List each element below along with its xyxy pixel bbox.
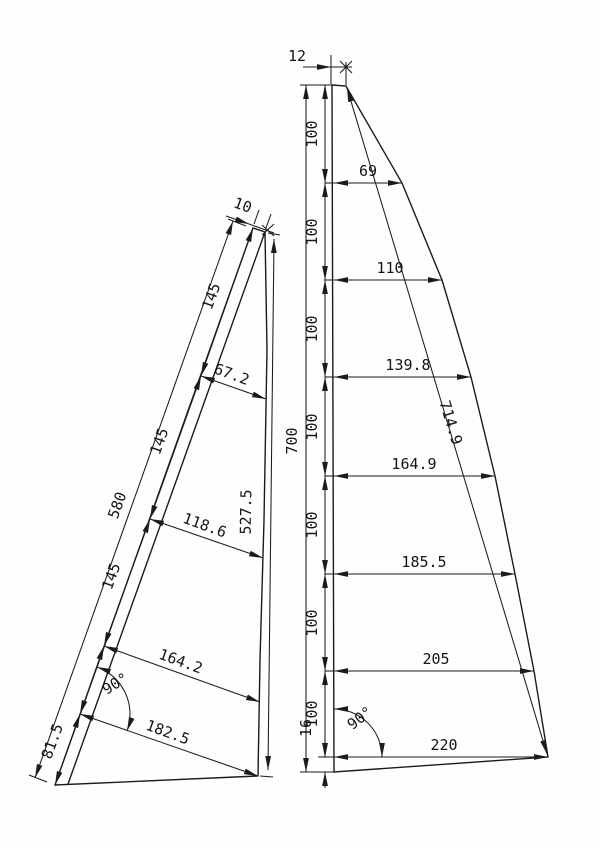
- dim-main-luff-segment-3: 100: [303, 315, 321, 342]
- dim-jib-luff-segment-2: 145: [146, 425, 172, 457]
- dim-main-head-width: 12: [288, 47, 306, 65]
- dim-main-clew-angle: 90°: [344, 703, 376, 734]
- dim-jib-girth-2: 118.6: [180, 509, 229, 541]
- dim-main-girth-5: 185.5: [401, 553, 446, 571]
- dim-jib-leech: 527.5: [237, 489, 256, 534]
- dim-main-luff-segment-4: 100: [303, 413, 321, 440]
- dim-jib-luff-total: 580: [104, 489, 130, 521]
- dim-main-luff-segment-1: 100: [303, 120, 321, 147]
- dim-main-luff-total: 700: [283, 427, 301, 454]
- dim-main-leech: 714.9: [436, 398, 466, 446]
- dim-jib-girth-1: 67.2: [212, 360, 252, 389]
- dim-jib-head-width: 10: [231, 194, 254, 217]
- main-outline: [332, 85, 548, 772]
- jib-outline: [55, 228, 267, 785]
- main-tack-offset-dimension: 16: [297, 719, 325, 788]
- dim-jib-girth-3: 164.2: [156, 645, 205, 677]
- main-head-dimension: 12: [288, 47, 352, 85]
- dim-main-luff-segment-6: 100: [303, 609, 321, 636]
- jib-head-dimension: 10: [226, 194, 274, 236]
- jib-luff-sleeve-line: [68, 232, 265, 784]
- dim-jib-girth-4: 182.5: [143, 716, 192, 748]
- dim-jib-clew-angle: 90°: [99, 669, 132, 699]
- jib-sail: 10 145 145 145 81.5 580 67.2: [29, 194, 280, 785]
- main-girth-dimensions: 69 110 139.8 164.9 185.5 205 220: [318, 162, 548, 757]
- dim-jib-luff-segment-3: 145: [98, 560, 124, 592]
- dim-jib-luff-tack-segment: 81.5: [38, 721, 67, 761]
- main-clew-angle: 90°: [334, 703, 382, 757]
- dim-main-girth-6: 205: [422, 650, 449, 668]
- dim-main-girth-4: 164.9: [391, 455, 436, 473]
- dim-main-girth-7: 220: [430, 736, 457, 754]
- dim-main-luff-segment-2: 100: [303, 218, 321, 245]
- sail-plan-drawing: 10 145 145 145 81.5 580 67.2: [0, 0, 600, 848]
- dim-main-luff-segment-5: 100: [303, 511, 321, 538]
- dim-main-tack-offset: 16: [297, 719, 315, 737]
- dim-main-girth-3: 139.8: [385, 356, 430, 374]
- jib-luff-segment-dimensions: 145 145 145 81.5: [38, 228, 253, 785]
- sail-plan-svg: 10 145 145 145 81.5 580 67.2: [0, 0, 600, 848]
- main-sail: 12 700 100 100 100 100 100 100 100: [283, 47, 548, 788]
